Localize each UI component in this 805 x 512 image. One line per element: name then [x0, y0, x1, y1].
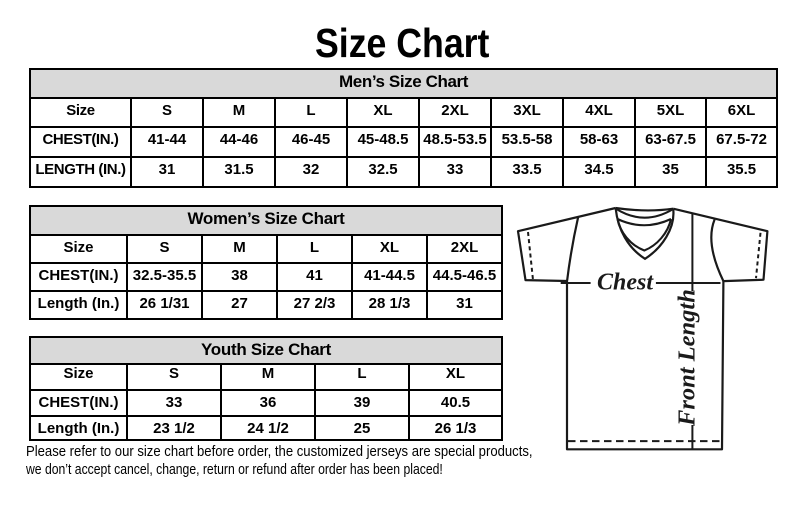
svg-text:Front Length: Front Length — [673, 289, 700, 427]
svg-text:Chest: Chest — [597, 270, 654, 296]
